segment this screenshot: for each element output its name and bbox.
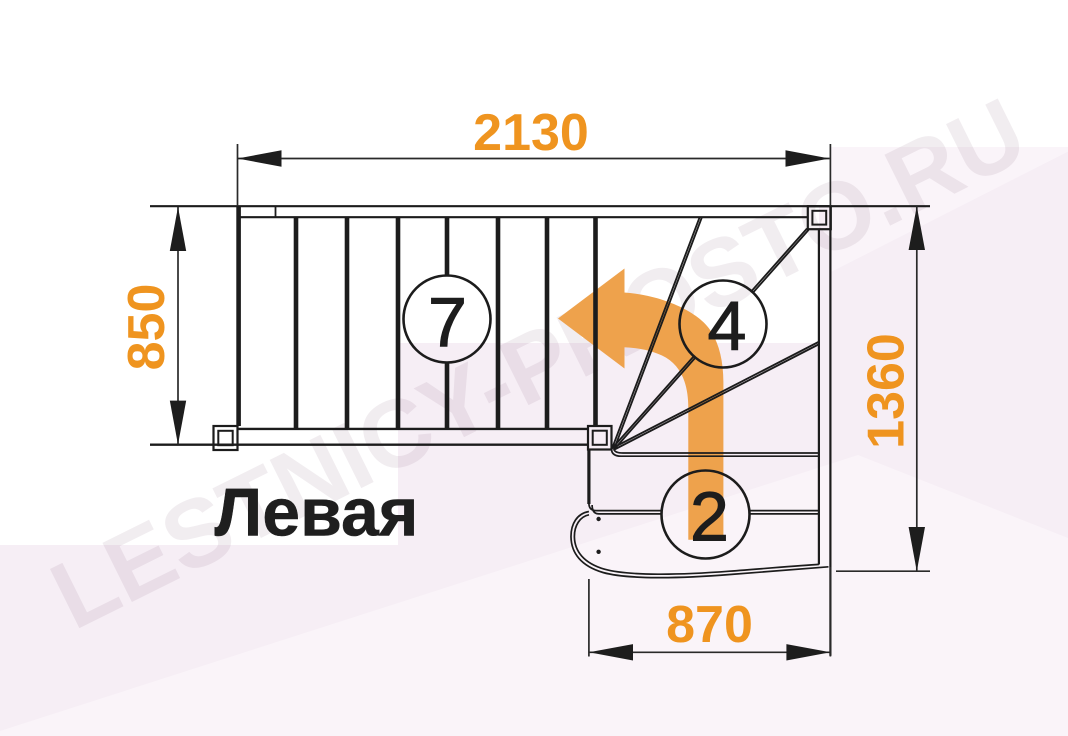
svg-text:Левая: Левая [215,475,419,551]
svg-text:2130: 2130 [473,104,589,162]
svg-text:850: 850 [118,284,176,371]
svg-text:4: 4 [708,287,747,365]
svg-text:870: 870 [666,596,753,654]
svg-text:2: 2 [690,478,729,556]
svg-text:7: 7 [428,283,467,361]
svg-text:1360: 1360 [858,333,916,449]
